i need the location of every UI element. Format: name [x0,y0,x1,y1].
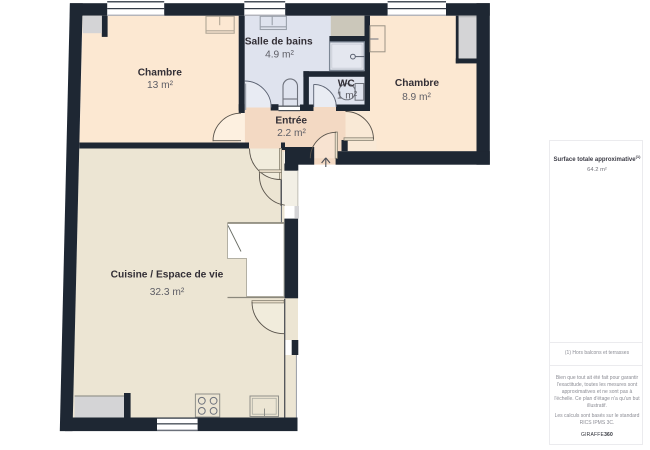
svg-text:4.9 m²: 4.9 m² [265,50,294,61]
svg-text:Salle de bains: Salle de bains [245,37,313,48]
svg-text:Entrée: Entrée [275,115,307,126]
svg-text:WC: WC [338,78,356,89]
svg-text:32.3 m²: 32.3 m² [150,287,185,298]
svg-text:Chambre: Chambre [395,78,439,89]
svg-text:1 m²: 1 m² [337,90,358,101]
svg-text:Chambre: Chambre [138,68,182,79]
svg-text:8.9 m²: 8.9 m² [402,92,431,103]
svg-text:2.2 m²: 2.2 m² [277,128,306,139]
svg-text:13 m²: 13 m² [147,80,174,91]
svg-text:Cuisine / Espace de vie: Cuisine / Espace de vie [111,270,224,281]
